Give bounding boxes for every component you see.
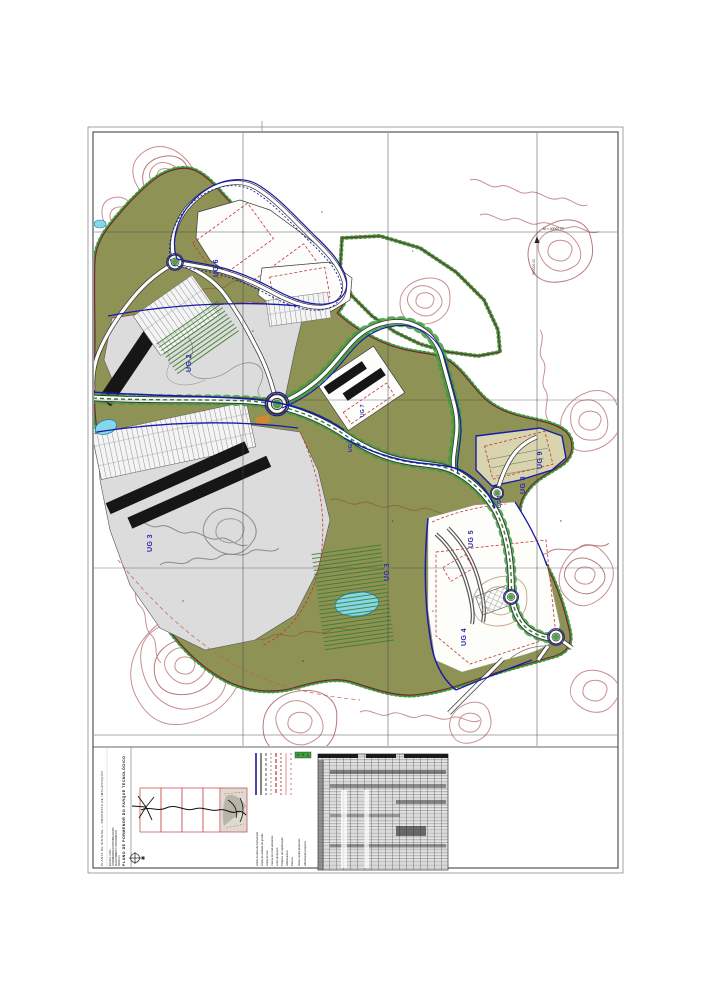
titleblock-title: PLANO DE PORMENOR DO PARQUE TECNOLÓGICO bbox=[121, 756, 126, 866]
coordinate-easting: M = 40000.00 bbox=[543, 227, 564, 231]
titleblock-spec-2: COORDENADAS HAYFORD-GAUSS bbox=[112, 827, 115, 866]
legend-label-0: Limite da área de intervenção bbox=[255, 831, 259, 866]
label-ug3-west: UG 3 bbox=[147, 534, 154, 552]
titleblock-subtitle: PLANTA DE SÍNTESE — PROPOSTA DE IMPLANTA… bbox=[99, 771, 104, 866]
label-ug2: UG 2 bbox=[186, 354, 193, 372]
legend-label-2: Limite de lote bbox=[265, 850, 269, 866]
label-ug9: UG 9 bbox=[537, 451, 544, 469]
label-ug8: UG 8 bbox=[520, 476, 527, 494]
titleblock-spec-4: FOLHA 01 bbox=[118, 855, 121, 866]
legend-label-5: Polígono de implantação bbox=[280, 837, 284, 866]
label-ug6: UG 6 bbox=[213, 259, 220, 277]
legend-label-1: Limite de unidade de gestão bbox=[260, 833, 264, 866]
legend-label-9: Arborização proposta bbox=[303, 841, 307, 866]
legend-label-3: Curvas de nível existentes bbox=[270, 835, 274, 866]
titleblock-spec-3: LEVANTAMENTO TOPOGRÁFICO bbox=[115, 830, 118, 866]
drawing-sheet-page: UG 6 UG 2 UG 3 UG 3 UG 5 UG 4 UG 9 UG 8 … bbox=[0, 0, 706, 1000]
legend-label-8: Áreas verdes propostas bbox=[297, 838, 301, 866]
label-ug1b: UG 1 bbox=[348, 439, 354, 452]
orchard-rows bbox=[311, 544, 394, 653]
legend-label-6: Alinhamentos bbox=[285, 850, 289, 866]
label-ug1: UG 1 bbox=[497, 495, 503, 508]
plan-drawing: UG 6 UG 2 UG 3 UG 3 UG 5 UG 4 UG 9 UG 8 … bbox=[0, 0, 706, 1000]
label-ug7: UG 7 bbox=[360, 404, 366, 417]
label-ug5: UG 5 bbox=[468, 530, 475, 548]
legend-label-4: Lotes propostos bbox=[275, 847, 279, 866]
label-ug3-mid: UG 3 bbox=[384, 563, 391, 581]
label-ug4: UG 4 bbox=[461, 628, 468, 646]
coordinate-northing: 300000.00 bbox=[532, 259, 536, 275]
legend-label-7: Recuos bbox=[290, 857, 294, 866]
titleblock-spec-1: ESCALA 1:2000 bbox=[109, 849, 112, 866]
map-area: UG 6 UG 2 UG 3 UG 3 UG 5 UG 4 UG 9 UG 8 … bbox=[92, 133, 634, 766]
schedule-table bbox=[318, 754, 448, 870]
